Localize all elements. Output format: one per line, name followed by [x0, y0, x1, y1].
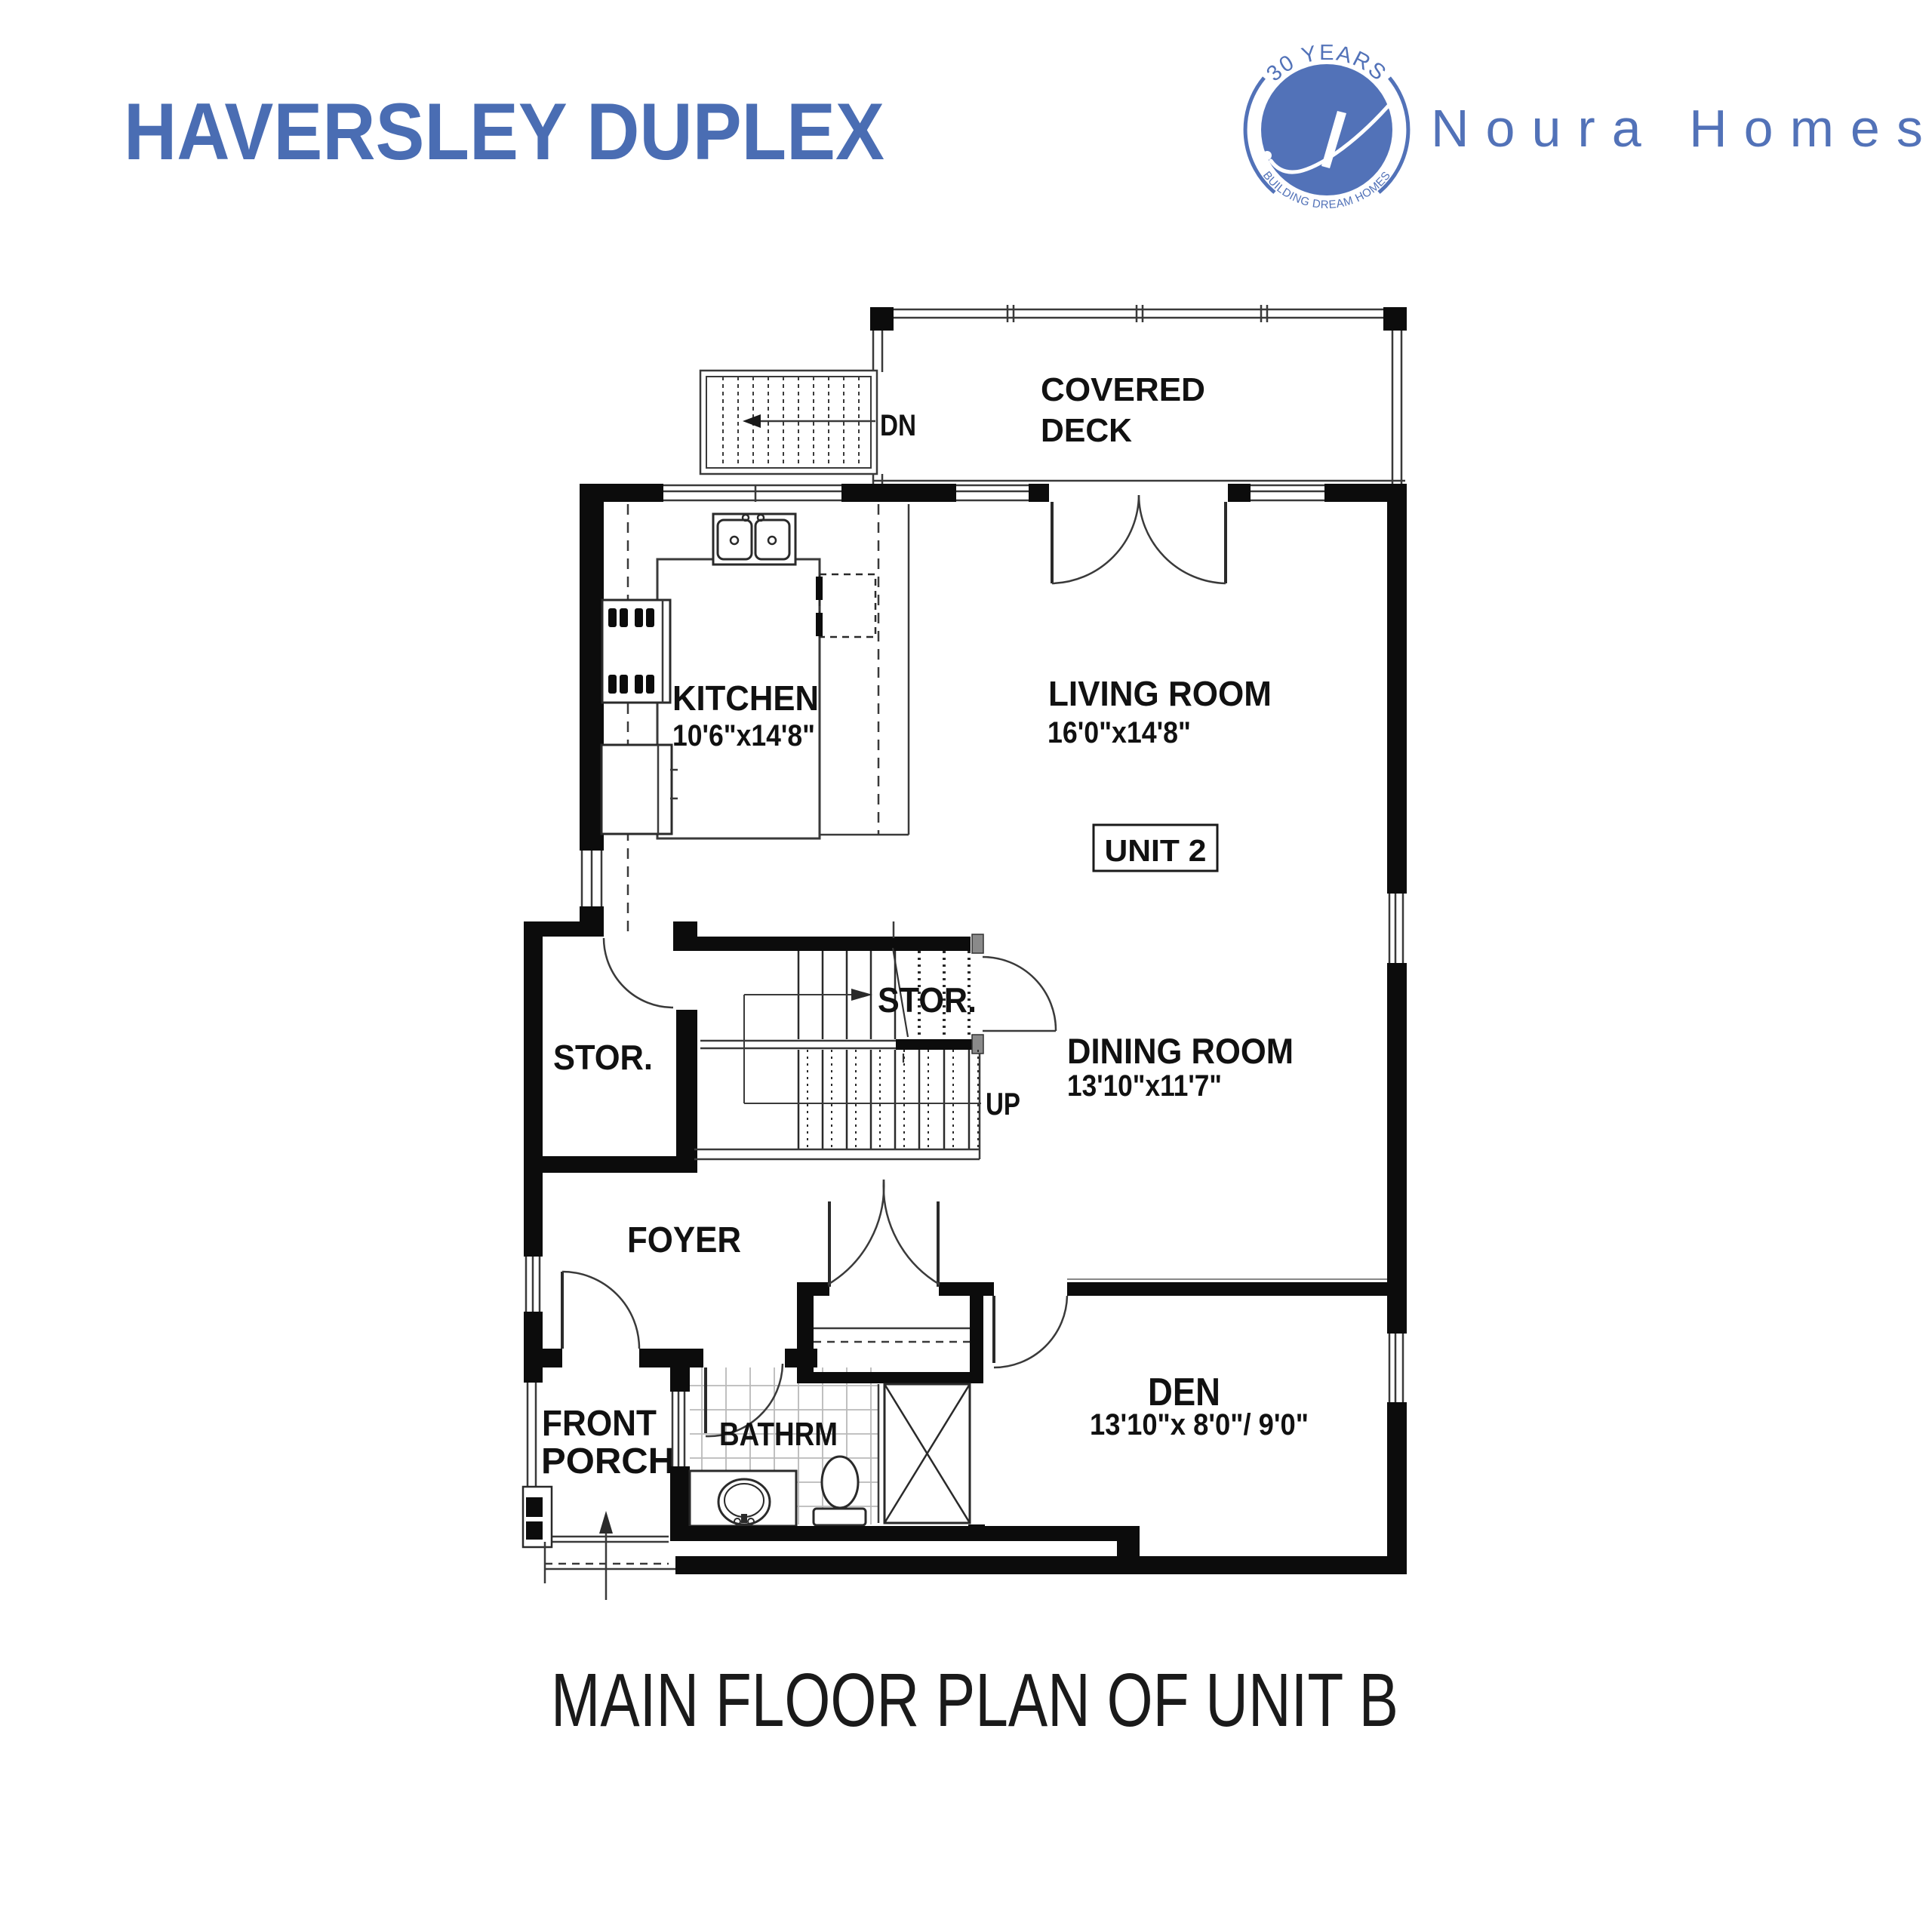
svg-text:10'6"x14'8": 10'6"x14'8"	[672, 719, 815, 752]
svg-text:FRONT: FRONT	[542, 1404, 657, 1444]
svg-text:UP: UP	[986, 1086, 1020, 1121]
svg-text:KITCHEN: KITCHEN	[672, 678, 819, 718]
svg-text:DN: DN	[880, 409, 916, 442]
svg-text:STOR.: STOR.	[553, 1038, 653, 1077]
svg-text:COVERED: COVERED	[1041, 371, 1205, 408]
svg-text:LIVING ROOM: LIVING ROOM	[1048, 674, 1272, 713]
svg-text:13'10"x 8'0"/ 9'0": 13'10"x 8'0"/ 9'0"	[1090, 1408, 1309, 1441]
svg-text:FOYER: FOYER	[627, 1220, 741, 1260]
svg-text:DINING ROOM: DINING ROOM	[1067, 1031, 1294, 1071]
svg-text:STOR.: STOR.	[878, 980, 977, 1020]
svg-text:Noura Homes: Noura Homes	[1431, 99, 1932, 158]
svg-text:HAVERSLEY DUPLEX: HAVERSLEY DUPLEX	[124, 86, 884, 177]
svg-text:MAIN FLOOR PLAN OF UNIT B: MAIN FLOOR PLAN OF UNIT B	[551, 1658, 1398, 1743]
svg-text:DECK: DECK	[1041, 412, 1132, 449]
svg-text:13'10"x11'7": 13'10"x11'7"	[1067, 1069, 1222, 1103]
svg-text:16'0"x14'8": 16'0"x14'8"	[1048, 716, 1191, 749]
svg-text:UNIT 2: UNIT 2	[1105, 833, 1207, 868]
svg-text:PORCH: PORCH	[541, 1441, 675, 1481]
svg-text:BATHRM: BATHRM	[719, 1416, 838, 1453]
